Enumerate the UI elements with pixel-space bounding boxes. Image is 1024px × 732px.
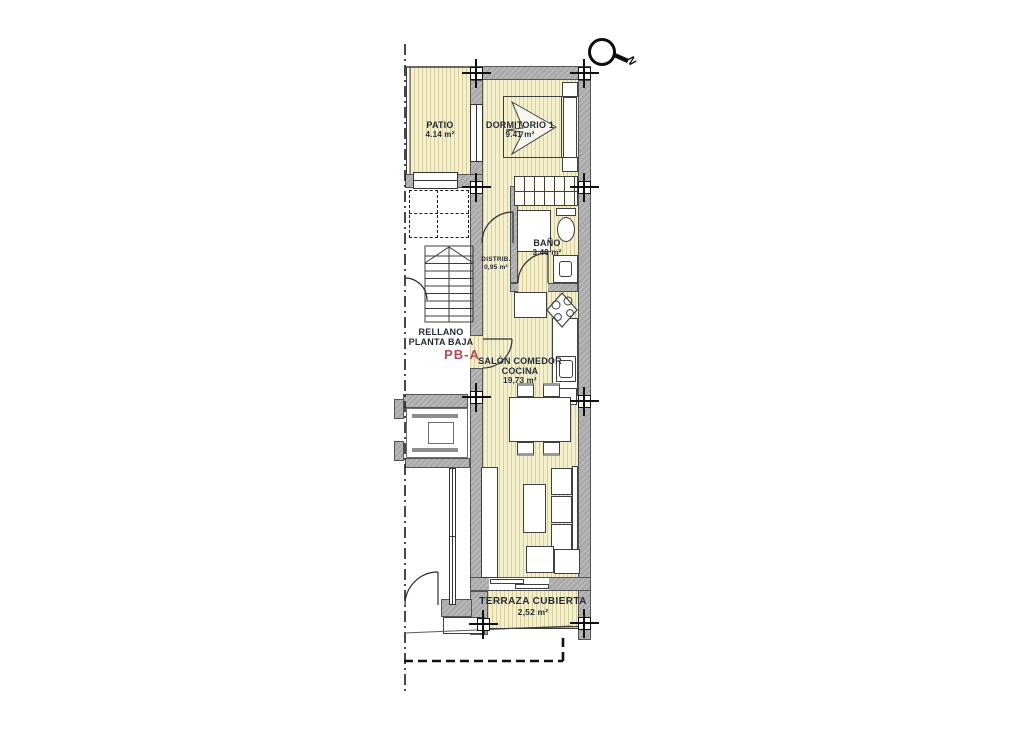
patio-window bbox=[413, 172, 458, 189]
room-area: 2,52 m² bbox=[479, 607, 587, 618]
wardrobe bbox=[514, 176, 578, 206]
wall-corridor-top bbox=[405, 458, 470, 468]
room-area: 0,95 m² bbox=[481, 264, 510, 272]
bath-sink-basin bbox=[559, 261, 572, 277]
unit-code-label: PB-A bbox=[444, 347, 480, 362]
dining-chair bbox=[543, 442, 560, 456]
north-label: N bbox=[624, 55, 638, 68]
corridor-exterior-door bbox=[405, 572, 438, 605]
grid-marker bbox=[578, 181, 591, 194]
bath-door-gap bbox=[518, 283, 548, 292]
bed-headboard bbox=[563, 97, 577, 158]
distrib-label: DISTRIB. 0,95 m² bbox=[481, 256, 510, 271]
wall-neighbor-stub-1 bbox=[394, 399, 404, 419]
tv-unit bbox=[481, 467, 498, 578]
toilet-tank bbox=[556, 208, 576, 216]
grid-marker bbox=[578, 617, 591, 630]
room-name-line2: COCINA bbox=[478, 366, 562, 376]
dining-chair bbox=[517, 442, 534, 456]
dining-table bbox=[509, 397, 571, 442]
salon-label: SALÓN COMEDOR COCINA 19,73 m² bbox=[478, 356, 562, 386]
floor-plan-canvas: N PATIO 4.14 m² DORMITORIO 1 9.41 m² BAÑ… bbox=[0, 0, 1024, 732]
sofa-back bbox=[572, 466, 578, 552]
grid-marker bbox=[470, 67, 483, 80]
corridor-glazing-tick bbox=[449, 536, 456, 537]
room-area: 3.40 m² bbox=[533, 248, 562, 258]
sofa-cushion bbox=[551, 524, 572, 550]
wall-terraza-stub bbox=[441, 599, 472, 617]
rellano-door bbox=[405, 278, 427, 300]
grid-marker bbox=[470, 181, 483, 194]
room-name: DORMITORIO 1 bbox=[486, 120, 554, 130]
sliding-door-leaf-2 bbox=[515, 584, 549, 589]
staircase bbox=[425, 246, 473, 322]
patio-label: PATIO 4.14 m² bbox=[426, 120, 455, 140]
grid-marker bbox=[578, 67, 591, 80]
side-table bbox=[526, 546, 554, 573]
grid-marker bbox=[578, 395, 591, 408]
nightstand-top bbox=[562, 82, 578, 97]
wall-rellano-bottom bbox=[403, 394, 468, 408]
room-area: 9.41 m² bbox=[486, 130, 554, 140]
grid-marker bbox=[470, 391, 483, 404]
hidden-stair-divider bbox=[437, 190, 438, 238]
room-area: 4.14 m² bbox=[426, 130, 455, 140]
bano-label: BAÑO 3.40 m² bbox=[533, 238, 562, 258]
room-area: 19,73 m² bbox=[478, 376, 562, 386]
wall-neighbor-stub-2 bbox=[394, 441, 404, 461]
room-name: BAÑO bbox=[533, 238, 562, 248]
north-indicator bbox=[588, 38, 616, 66]
grid-marker bbox=[477, 618, 490, 631]
elevator-bar-1 bbox=[412, 414, 458, 418]
sofa-cushion bbox=[551, 496, 572, 523]
hidden-stair-line bbox=[409, 213, 469, 214]
hidden-stair-flight bbox=[409, 190, 469, 238]
armchair bbox=[554, 549, 580, 574]
elevator-car bbox=[428, 422, 454, 444]
dormitorio-label: DORMITORIO 1 9.41 m² bbox=[486, 120, 554, 140]
room-name-line1: SALÓN COMEDOR bbox=[478, 356, 562, 366]
plot-dashed-boundary bbox=[404, 636, 563, 661]
nightstand-bottom bbox=[562, 157, 578, 172]
sofa-cushion bbox=[551, 468, 572, 495]
room-name: PATIO bbox=[426, 120, 455, 130]
landing-line2: PLANTA BAJA bbox=[409, 337, 474, 347]
room-name: DISTRIB. bbox=[481, 256, 510, 264]
landing-line1: RELLANO bbox=[409, 327, 474, 337]
rellano-label: RELLANO PLANTA BAJA bbox=[409, 327, 474, 347]
distrib-room bbox=[483, 188, 510, 292]
dormitorio-patio-window bbox=[470, 104, 483, 162]
room-name: TERRAZA CUBIERTA bbox=[479, 596, 587, 607]
elevator-bar-2 bbox=[412, 448, 458, 452]
coffee-table bbox=[523, 484, 546, 533]
terraza-label: TERRAZA CUBIERTA 2,52 m² bbox=[479, 596, 587, 618]
kitchen-counter-top bbox=[514, 292, 547, 318]
